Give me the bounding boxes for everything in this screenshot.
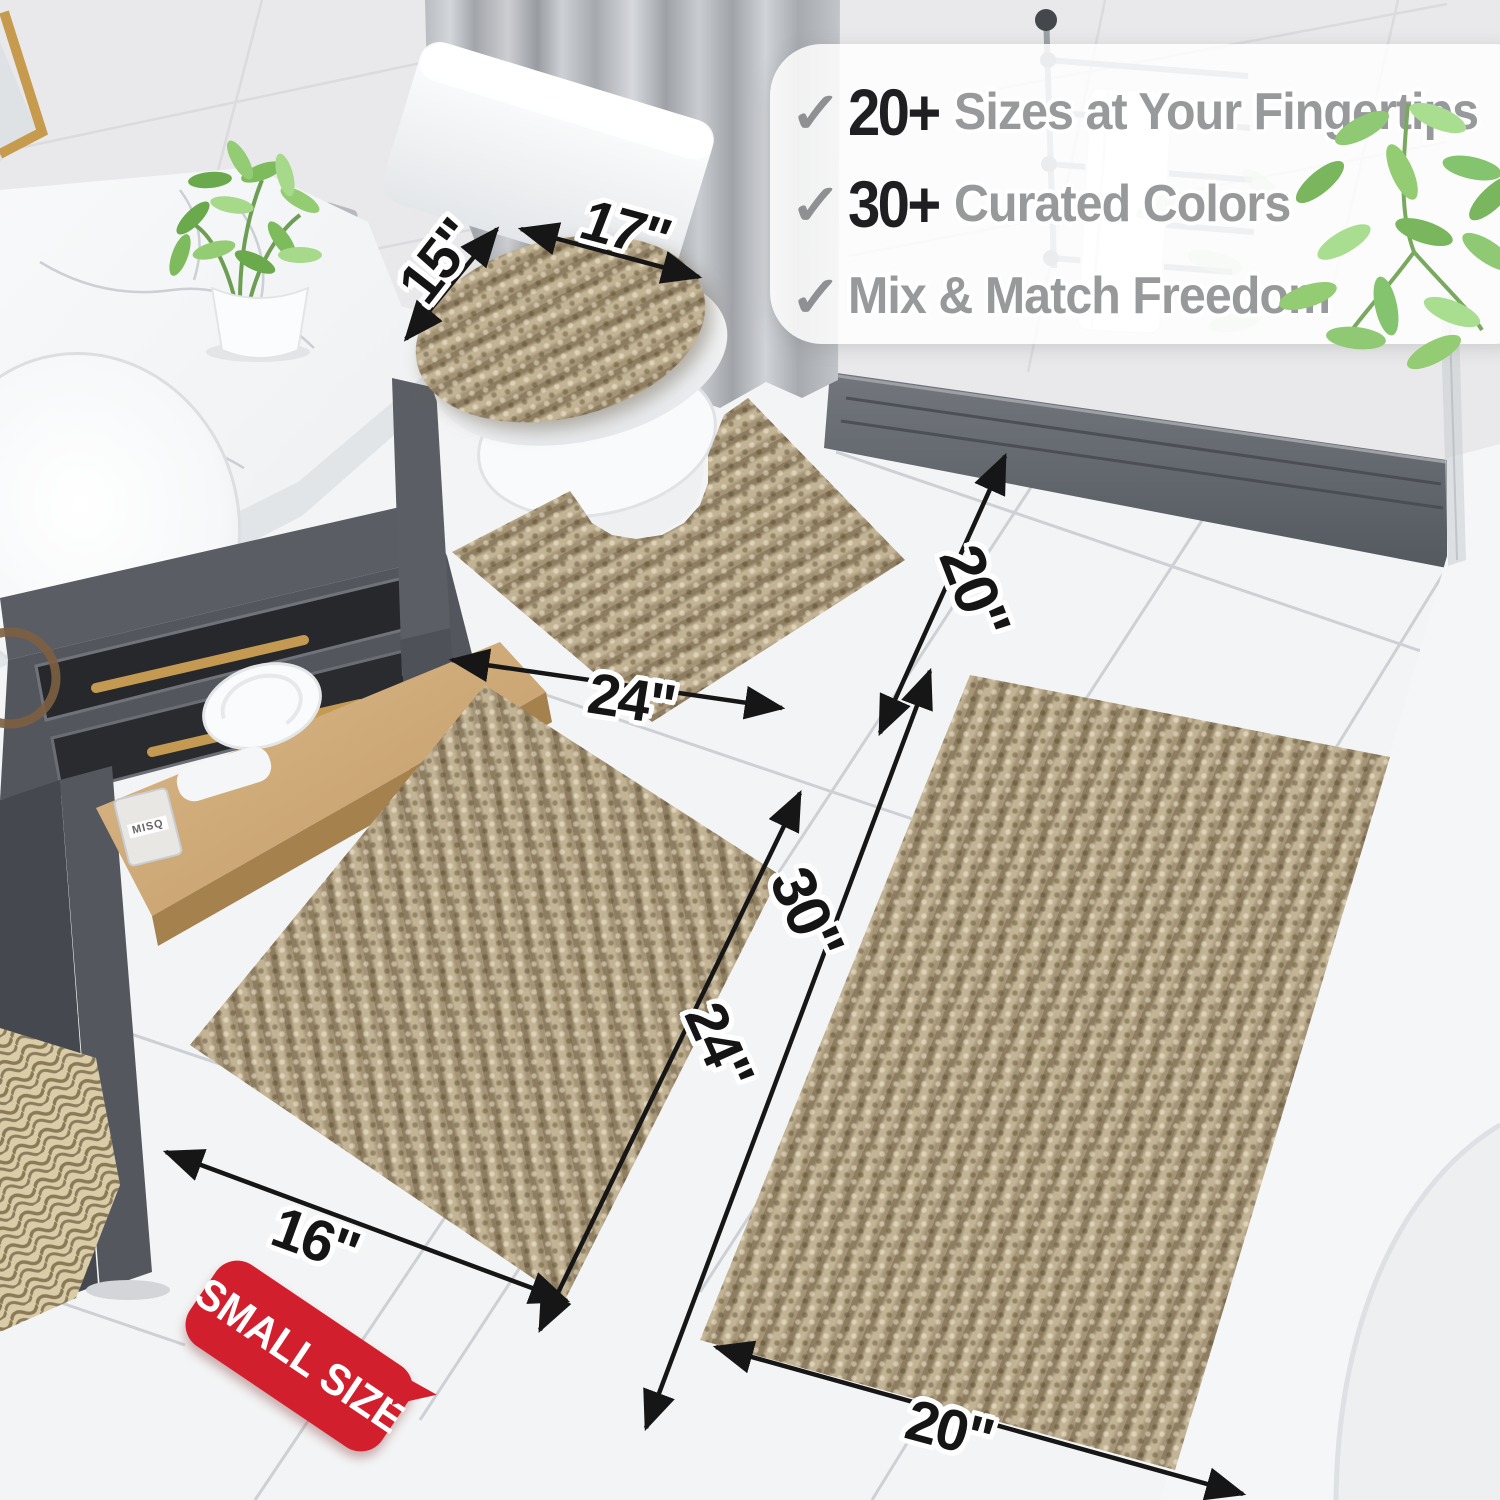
feature-row: ✓ Mix & Match Freedom — [784, 250, 1500, 342]
dimension-label-contour-width: 24" — [583, 660, 678, 740]
plant-pot — [212, 288, 308, 358]
checkmark-icon: ✓ — [784, 170, 848, 237]
perfume-label: MISQ — [127, 815, 169, 838]
feature-row: ✓ 20+ Sizes at Your Fingertips — [784, 66, 1500, 158]
checkmark-icon: ✓ — [784, 262, 848, 329]
feature-stat: 30+ — [848, 171, 941, 237]
feature-label: Mix & Match Freedom — [848, 270, 1330, 322]
feature-label: Sizes at Your Fingertips — [954, 86, 1478, 138]
checkmark-icon: ✓ — [784, 78, 848, 145]
product-image: MISQ 15" 17" 24" 20" 30" 24" 16" 20" — [0, 0, 1500, 1500]
feature-stat: 20+ — [848, 79, 941, 145]
feature-callout: ✓ 20+ Sizes at Your Fingertips ✓ 30+ Cur… — [770, 44, 1500, 344]
rack-cap — [1035, 9, 1057, 31]
feature-row: ✓ 30+ Curated Colors — [784, 158, 1500, 250]
feature-label: Curated Colors — [954, 178, 1290, 230]
